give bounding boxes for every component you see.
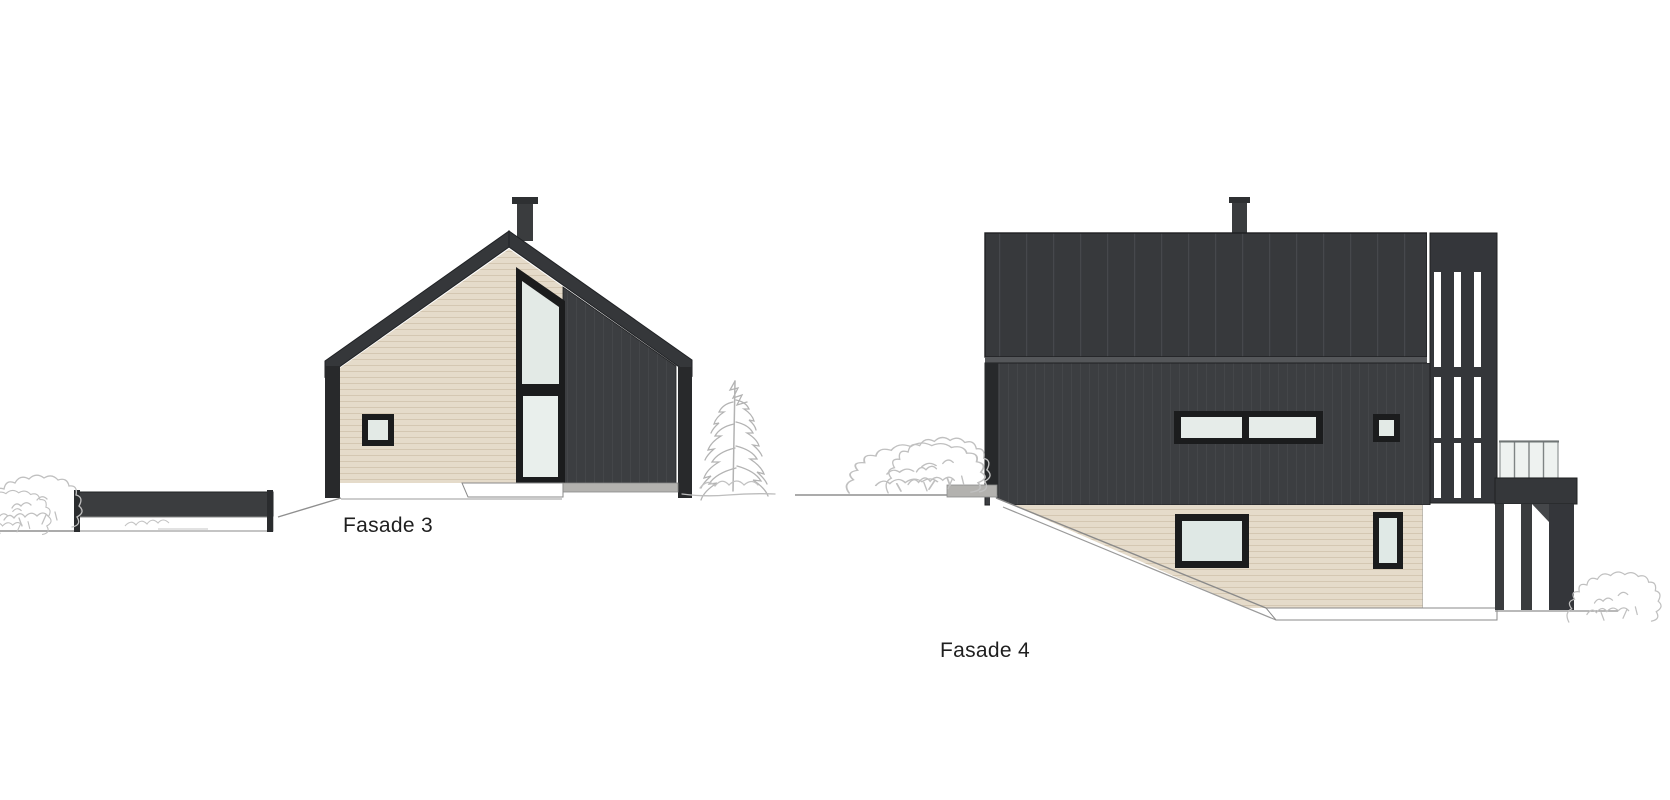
fasade-3-label: Fasade 3: [343, 514, 433, 538]
low-annex-wall: [74, 490, 273, 532]
porch-slat: [1495, 504, 1504, 610]
balcony-railing: [1499, 441, 1559, 478]
recessed-entry: [1423, 505, 1495, 608]
band-window-pane-left: [1181, 417, 1242, 438]
louver-slot: [1454, 272, 1461, 367]
conifer-tree-sketch: [682, 381, 775, 500]
fasade-3-elevation: [0, 197, 692, 532]
fasade-4-elevation: [795, 197, 1618, 622]
tree-branch: [701, 448, 735, 488]
louver-slot: [1454, 443, 1461, 498]
louver-slot: [1474, 377, 1481, 438]
elevation-drawing: [0, 0, 1670, 800]
chimney-cap: [512, 197, 538, 204]
bush-left-of-house-2: [886, 437, 990, 492]
annex-right-post: [267, 490, 273, 532]
chimney: [1232, 201, 1247, 235]
elevation-drawing-sheet: Fasade 3 Fasade 4: [0, 0, 1670, 800]
tree-top: [730, 381, 747, 405]
left-corner-trim: [325, 366, 340, 498]
porch-slats: [1495, 504, 1574, 610]
band-window-pane-right: [1249, 417, 1316, 438]
fasade-4-label: Fasade 4: [940, 639, 1030, 663]
porch-slat: [1521, 504, 1532, 610]
foundation-band: [1266, 608, 1497, 620]
louver-slot: [1434, 272, 1441, 367]
porch-slat: [1549, 504, 1574, 610]
chimney: [517, 203, 533, 241]
right-corner-trim: [678, 367, 692, 498]
louver-slot: [1474, 443, 1481, 498]
bush-far-right: [1567, 572, 1661, 622]
tree-branch: [736, 446, 767, 484]
louver-slot: [1474, 272, 1481, 367]
louver-slot: [1434, 443, 1441, 498]
foundation-strip-concrete: [563, 483, 678, 492]
lower-window-pane: [1182, 521, 1242, 561]
concrete-step: [947, 485, 997, 497]
bush-far-left: [0, 475, 82, 528]
roof-eave-groove: [985, 357, 1427, 363]
foundation-strip-white: [462, 483, 563, 497]
balcony-fascia: [1495, 478, 1577, 504]
left-corner-trim: [985, 363, 998, 495]
roof-slab: [985, 233, 1427, 357]
louver-slot: [1454, 377, 1461, 438]
ground-scribble: [682, 494, 775, 496]
glass-door-pane: [523, 396, 558, 477]
annex-dark-band: [77, 492, 273, 517]
small-window-pane: [368, 420, 388, 440]
louver-slot: [1434, 377, 1441, 438]
small-window-pane: [1379, 420, 1394, 436]
ground-line-slope: [278, 498, 341, 517]
narrow-window-pane: [1379, 518, 1397, 563]
chimney-cap: [1229, 197, 1250, 203]
